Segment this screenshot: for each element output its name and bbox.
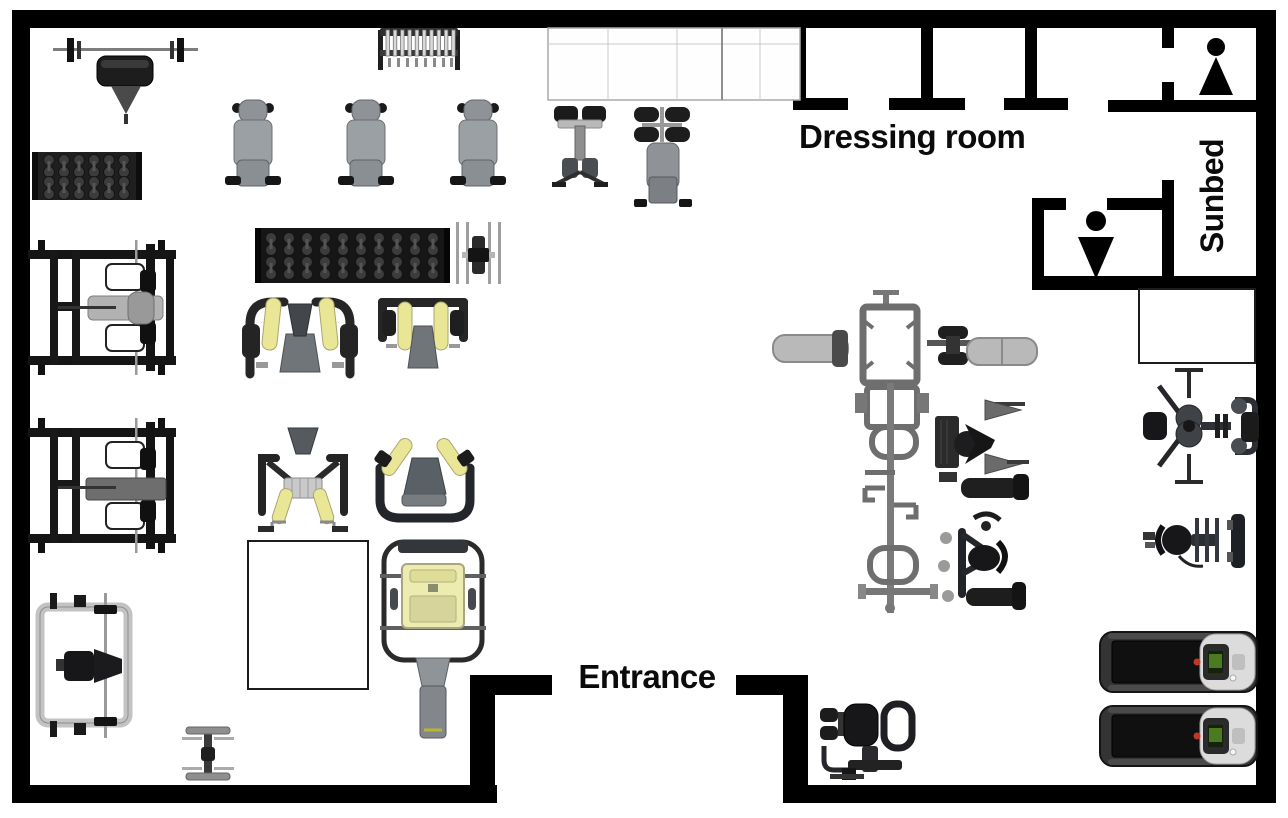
glute-kickback-machine — [820, 704, 912, 780]
flat-bench — [182, 727, 234, 780]
adjustable-bench-1 — [225, 100, 281, 186]
adjustable-bench-2 — [338, 100, 394, 186]
treadmill-1 — [1100, 632, 1257, 692]
arm-machine — [456, 222, 501, 284]
leg-curl-machine — [1143, 514, 1245, 568]
power-rack-2 — [28, 418, 176, 553]
gym-floor-plan: Dressing room Sunbed Entrance — [0, 0, 1288, 818]
seated-row-machine — [258, 428, 348, 532]
pec-deck-machine — [1143, 368, 1259, 484]
exercise-bike-machine — [938, 514, 1026, 610]
dumbbell-rack-small — [32, 152, 142, 200]
mat-area-grid — [548, 28, 800, 100]
pec-fly-machine — [242, 297, 358, 374]
hack-squat-machine — [380, 540, 486, 738]
woman-icon — [1199, 38, 1233, 95]
man-icon — [1078, 211, 1114, 279]
dumbbell-rack-long — [255, 228, 450, 283]
treadmill-2 — [1100, 706, 1257, 766]
roman-chair — [552, 106, 608, 187]
barbell-rack — [378, 28, 460, 70]
shoulder-press-machine — [378, 298, 468, 368]
ab-bench — [634, 107, 692, 207]
adjustable-bench-3 — [450, 100, 506, 186]
equipment-layer — [0, 0, 1288, 818]
cable-column-machine — [935, 400, 1029, 500]
bench-press — [53, 38, 198, 124]
power-rack-1 — [28, 240, 176, 375]
smith-machine — [40, 593, 128, 738]
dip-shrug-machine — [373, 436, 475, 518]
